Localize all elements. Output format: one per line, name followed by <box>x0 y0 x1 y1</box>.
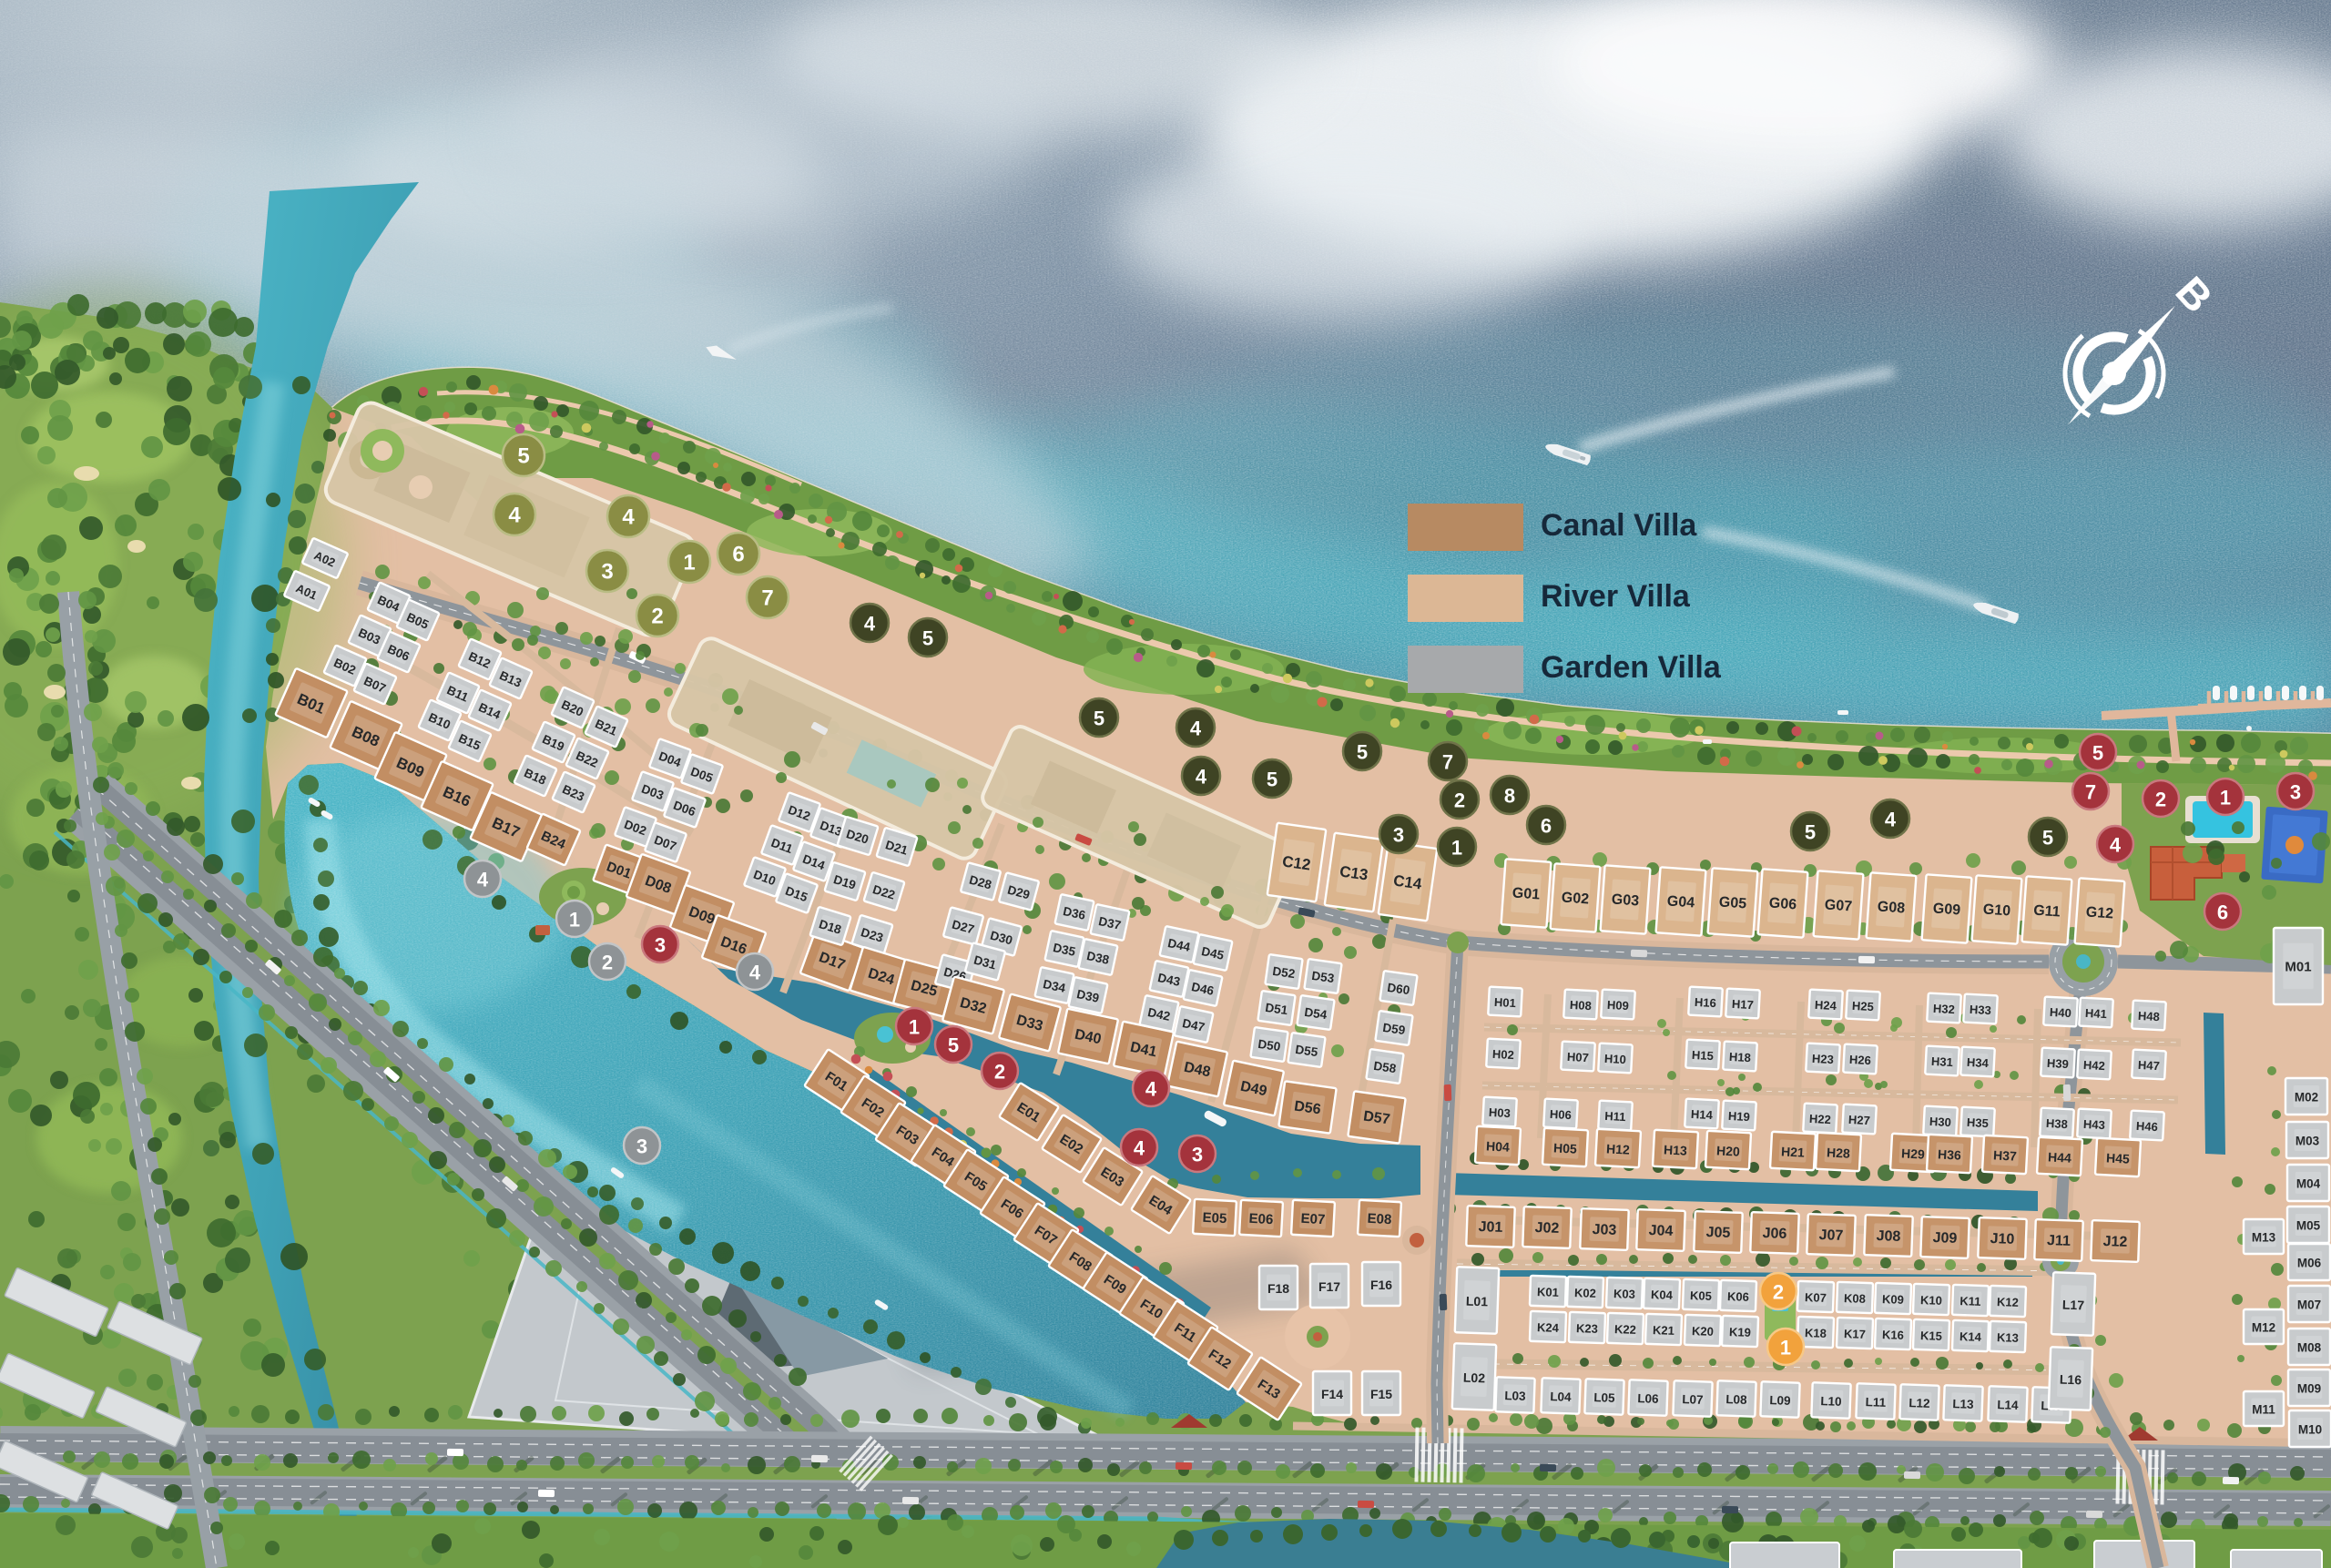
svg-text:3: 3 <box>655 934 666 957</box>
svg-text:K09: K09 <box>1882 1292 1904 1307</box>
svg-text:H01: H01 <box>1494 995 1517 1010</box>
svg-text:J09: J09 <box>1932 1230 1957 1247</box>
svg-text:6: 6 <box>2217 901 2228 924</box>
svg-text:4: 4 <box>1190 718 1202 740</box>
svg-text:G01: G01 <box>1512 885 1540 902</box>
svg-text:M01: M01 <box>2285 960 2311 975</box>
svg-text:H23: H23 <box>1812 1052 1835 1066</box>
svg-text:K23: K23 <box>1576 1321 1598 1336</box>
svg-text:K06: K06 <box>1727 1289 1749 1304</box>
svg-text:7: 7 <box>2085 781 2096 804</box>
svg-text:F16: F16 <box>1370 1278 1392 1292</box>
svg-text:1: 1 <box>683 551 695 575</box>
svg-text:H16: H16 <box>1695 995 1717 1010</box>
svg-text:H18: H18 <box>1729 1050 1752 1064</box>
svg-text:L07: L07 <box>1682 1392 1704 1407</box>
svg-text:K22: K22 <box>1614 1322 1636 1337</box>
svg-text:5: 5 <box>1805 821 1816 844</box>
svg-text:K10: K10 <box>1920 1293 1942 1308</box>
svg-text:3: 3 <box>1192 1144 1203 1166</box>
svg-text:H05: H05 <box>1553 1140 1578 1156</box>
svg-text:F15: F15 <box>1370 1387 1392 1401</box>
svg-text:L13: L13 <box>1952 1397 1974 1411</box>
svg-text:H47: H47 <box>2138 1058 2161 1073</box>
svg-text:H46: H46 <box>2136 1119 2159 1134</box>
svg-text:H34: H34 <box>1967 1055 1990 1070</box>
svg-text:H37: H37 <box>1993 1147 2018 1163</box>
svg-text:F18: F18 <box>1267 1281 1289 1296</box>
svg-text:L16: L16 <box>2060 1372 2082 1388</box>
svg-text:River Villa: River Villa <box>1541 579 1691 614</box>
svg-text:H24: H24 <box>1815 998 1837 1013</box>
svg-text:M06: M06 <box>2297 1257 2322 1270</box>
svg-text:6: 6 <box>1541 815 1552 838</box>
svg-text:8: 8 <box>1504 785 1515 808</box>
svg-text:K13: K13 <box>1997 1330 2019 1345</box>
svg-text:E05: E05 <box>1202 1210 1227 1227</box>
svg-text:H06: H06 <box>1550 1107 1573 1122</box>
svg-text:K15: K15 <box>1920 1329 1942 1343</box>
svg-text:F14: F14 <box>1321 1387 1343 1401</box>
svg-text:K02: K02 <box>1574 1286 1596 1300</box>
svg-text:G05: G05 <box>1718 894 1746 911</box>
svg-text:3: 3 <box>636 1135 647 1158</box>
svg-text:K03: K03 <box>1613 1287 1635 1301</box>
svg-text:K16: K16 <box>1882 1328 1904 1342</box>
svg-text:G11: G11 <box>2033 902 2061 920</box>
svg-text:G04: G04 <box>1666 893 1695 911</box>
svg-text:K08: K08 <box>1844 1291 1866 1306</box>
svg-text:H02: H02 <box>1492 1047 1515 1062</box>
svg-text:J02: J02 <box>1534 1220 1559 1237</box>
svg-text:5: 5 <box>1357 741 1368 764</box>
svg-text:J03: J03 <box>1592 1222 1616 1238</box>
svg-text:H03: H03 <box>1489 1105 1512 1120</box>
svg-text:H10: H10 <box>1604 1052 1627 1066</box>
svg-text:H39: H39 <box>2047 1056 2070 1071</box>
svg-text:G08: G08 <box>1877 899 1905 916</box>
svg-text:L12: L12 <box>1909 1396 1930 1410</box>
svg-text:2: 2 <box>2155 789 2166 811</box>
svg-text:4: 4 <box>1885 809 1897 831</box>
svg-text:H36: H36 <box>1938 1146 1962 1162</box>
svg-text:K24: K24 <box>1537 1320 1560 1335</box>
svg-text:1: 1 <box>909 1016 920 1039</box>
svg-text:K05: K05 <box>1690 1288 1712 1303</box>
svg-text:2: 2 <box>602 952 613 974</box>
svg-text:M05: M05 <box>2296 1219 2321 1233</box>
svg-text:1: 1 <box>1451 837 1462 860</box>
svg-text:2: 2 <box>1454 789 1465 812</box>
svg-text:E08: E08 <box>1367 1211 1392 1227</box>
svg-text:G07: G07 <box>1824 897 1852 914</box>
svg-text:K17: K17 <box>1844 1327 1866 1341</box>
svg-text:7: 7 <box>1442 751 1453 774</box>
svg-text:K19: K19 <box>1729 1325 1751 1339</box>
svg-text:L11: L11 <box>1865 1395 1887 1410</box>
svg-text:H48: H48 <box>2138 1009 2161 1023</box>
svg-text:K21: K21 <box>1653 1323 1674 1338</box>
svg-text:J10: J10 <box>1990 1231 2014 1247</box>
svg-text:L17: L17 <box>2062 1298 2085 1313</box>
svg-text:4: 4 <box>622 505 635 530</box>
svg-text:H42: H42 <box>2083 1058 2106 1073</box>
svg-text:H20: H20 <box>1716 1143 1741 1158</box>
svg-text:1: 1 <box>1780 1337 1791 1359</box>
svg-text:F17: F17 <box>1318 1279 1340 1294</box>
svg-text:H15: H15 <box>1692 1048 1715 1063</box>
svg-text:H19: H19 <box>1728 1109 1751 1124</box>
svg-text:H44: H44 <box>2048 1149 2072 1165</box>
svg-text:G02: G02 <box>1561 890 1589 907</box>
svg-text:H17: H17 <box>1732 997 1755 1012</box>
svg-text:L08: L08 <box>1725 1392 1747 1407</box>
svg-text:H30: H30 <box>1929 1115 1952 1129</box>
svg-text:M03: M03 <box>2295 1135 2320 1148</box>
svg-text:J05: J05 <box>1705 1225 1730 1241</box>
svg-text:E06: E06 <box>1248 1211 1274 1227</box>
svg-text:5: 5 <box>922 627 933 650</box>
svg-text:5: 5 <box>2042 827 2053 850</box>
svg-text:H43: H43 <box>2083 1117 2106 1132</box>
svg-text:H33: H33 <box>1970 1003 1992 1017</box>
svg-text:M04: M04 <box>2296 1177 2321 1191</box>
svg-text:H32: H32 <box>1933 1002 1956 1016</box>
svg-text:M10: M10 <box>2298 1423 2322 1437</box>
svg-text:Garden Villa: Garden Villa <box>1541 650 1722 685</box>
svg-text:M07: M07 <box>2297 1298 2321 1312</box>
svg-text:3: 3 <box>2290 781 2301 804</box>
svg-text:K07: K07 <box>1805 1290 1827 1305</box>
svg-text:H07: H07 <box>1567 1050 1590 1064</box>
svg-text:H35: H35 <box>1967 1115 1990 1130</box>
svg-text:K11: K11 <box>1959 1294 1981 1308</box>
svg-text:G06: G06 <box>1768 895 1797 912</box>
svg-text:H31: H31 <box>1931 1054 1954 1069</box>
svg-text:Canal Villa: Canal Villa <box>1541 508 1697 543</box>
svg-text:M02: M02 <box>2295 1091 2318 1105</box>
svg-text:M12: M12 <box>2252 1321 2275 1335</box>
svg-text:H13: H13 <box>1664 1142 1688 1157</box>
svg-text:4: 4 <box>477 869 489 891</box>
svg-text:J08: J08 <box>1876 1228 1900 1245</box>
svg-text:E07: E07 <box>1300 1211 1326 1227</box>
svg-text:J11: J11 <box>2047 1233 2071 1249</box>
svg-text:L09: L09 <box>1769 1393 1791 1408</box>
svg-text:4: 4 <box>864 613 876 636</box>
svg-text:5: 5 <box>948 1034 959 1057</box>
svg-text:G09: G09 <box>1932 901 1960 918</box>
svg-text:1: 1 <box>2220 787 2231 809</box>
svg-text:2: 2 <box>651 605 663 629</box>
svg-text:M13: M13 <box>2252 1231 2276 1245</box>
svg-text:G03: G03 <box>1611 891 1639 909</box>
svg-text:5: 5 <box>2092 742 2103 765</box>
svg-text:H22: H22 <box>1809 1112 1832 1126</box>
svg-text:6: 6 <box>732 543 744 567</box>
svg-text:K20: K20 <box>1692 1324 1714 1339</box>
svg-text:7: 7 <box>761 586 773 611</box>
svg-text:L06: L06 <box>1637 1391 1659 1406</box>
svg-text:H09: H09 <box>1607 998 1630 1013</box>
svg-text:K04: K04 <box>1651 1288 1674 1302</box>
svg-text:2: 2 <box>1773 1281 1784 1304</box>
svg-text:K14: K14 <box>1959 1329 1982 1344</box>
svg-text:L05: L05 <box>1593 1390 1615 1405</box>
svg-text:H11: H11 <box>1604 1109 1626 1124</box>
svg-text:5: 5 <box>517 444 529 469</box>
svg-text:4: 4 <box>1134 1137 1145 1160</box>
svg-text:5: 5 <box>1094 708 1104 730</box>
svg-text:H38: H38 <box>2046 1116 2069 1131</box>
svg-text:L04: L04 <box>1550 1390 1572 1404</box>
svg-text:M09: M09 <box>2297 1382 2321 1396</box>
svg-text:H27: H27 <box>1848 1113 1871 1127</box>
svg-text:4: 4 <box>1145 1078 1157 1101</box>
svg-text:4: 4 <box>2110 834 2122 857</box>
svg-text:H29: H29 <box>1901 1145 1926 1161</box>
svg-text:L02: L02 <box>1463 1370 1486 1386</box>
svg-text:H21: H21 <box>1781 1144 1806 1159</box>
svg-text:J06: J06 <box>1762 1226 1786 1242</box>
svg-text:L10: L10 <box>1820 1394 1842 1409</box>
svg-text:H08: H08 <box>1570 998 1593 1013</box>
svg-text:J01: J01 <box>1478 1219 1502 1236</box>
svg-text:L01: L01 <box>1466 1294 1489 1309</box>
svg-text:3: 3 <box>601 560 613 585</box>
svg-text:G12: G12 <box>2085 904 2113 921</box>
svg-text:K12: K12 <box>1997 1295 2019 1309</box>
svg-text:M11: M11 <box>2252 1403 2275 1417</box>
svg-text:4: 4 <box>508 504 521 528</box>
svg-text:1: 1 <box>569 909 580 932</box>
svg-text:G10: G10 <box>1982 901 2010 919</box>
svg-text:J12: J12 <box>2102 1234 2127 1250</box>
svg-text:L14: L14 <box>1997 1398 2019 1412</box>
svg-text:H28: H28 <box>1827 1145 1851 1160</box>
svg-text:H25: H25 <box>1852 999 1875 1013</box>
svg-text:M08: M08 <box>2297 1341 2322 1355</box>
svg-text:H12: H12 <box>1606 1141 1631 1156</box>
svg-text:5: 5 <box>1267 769 1277 791</box>
svg-text:H04: H04 <box>1486 1138 1511 1154</box>
svg-text:H14: H14 <box>1691 1107 1714 1122</box>
svg-text:2: 2 <box>994 1061 1005 1084</box>
svg-text:4: 4 <box>1196 766 1207 789</box>
svg-text:4: 4 <box>749 962 761 984</box>
svg-text:H26: H26 <box>1849 1053 1872 1067</box>
svg-text:H41: H41 <box>2085 1006 2108 1021</box>
svg-text:K18: K18 <box>1805 1326 1827 1340</box>
svg-text:L03: L03 <box>1504 1389 1526 1403</box>
svg-text:J07: J07 <box>1818 1227 1843 1244</box>
svg-text:J04: J04 <box>1648 1223 1673 1239</box>
svg-text:K01: K01 <box>1537 1285 1559 1299</box>
svg-text:3: 3 <box>1393 824 1404 847</box>
svg-text:H40: H40 <box>2050 1005 2072 1020</box>
svg-text:H45: H45 <box>2106 1150 2131 1166</box>
